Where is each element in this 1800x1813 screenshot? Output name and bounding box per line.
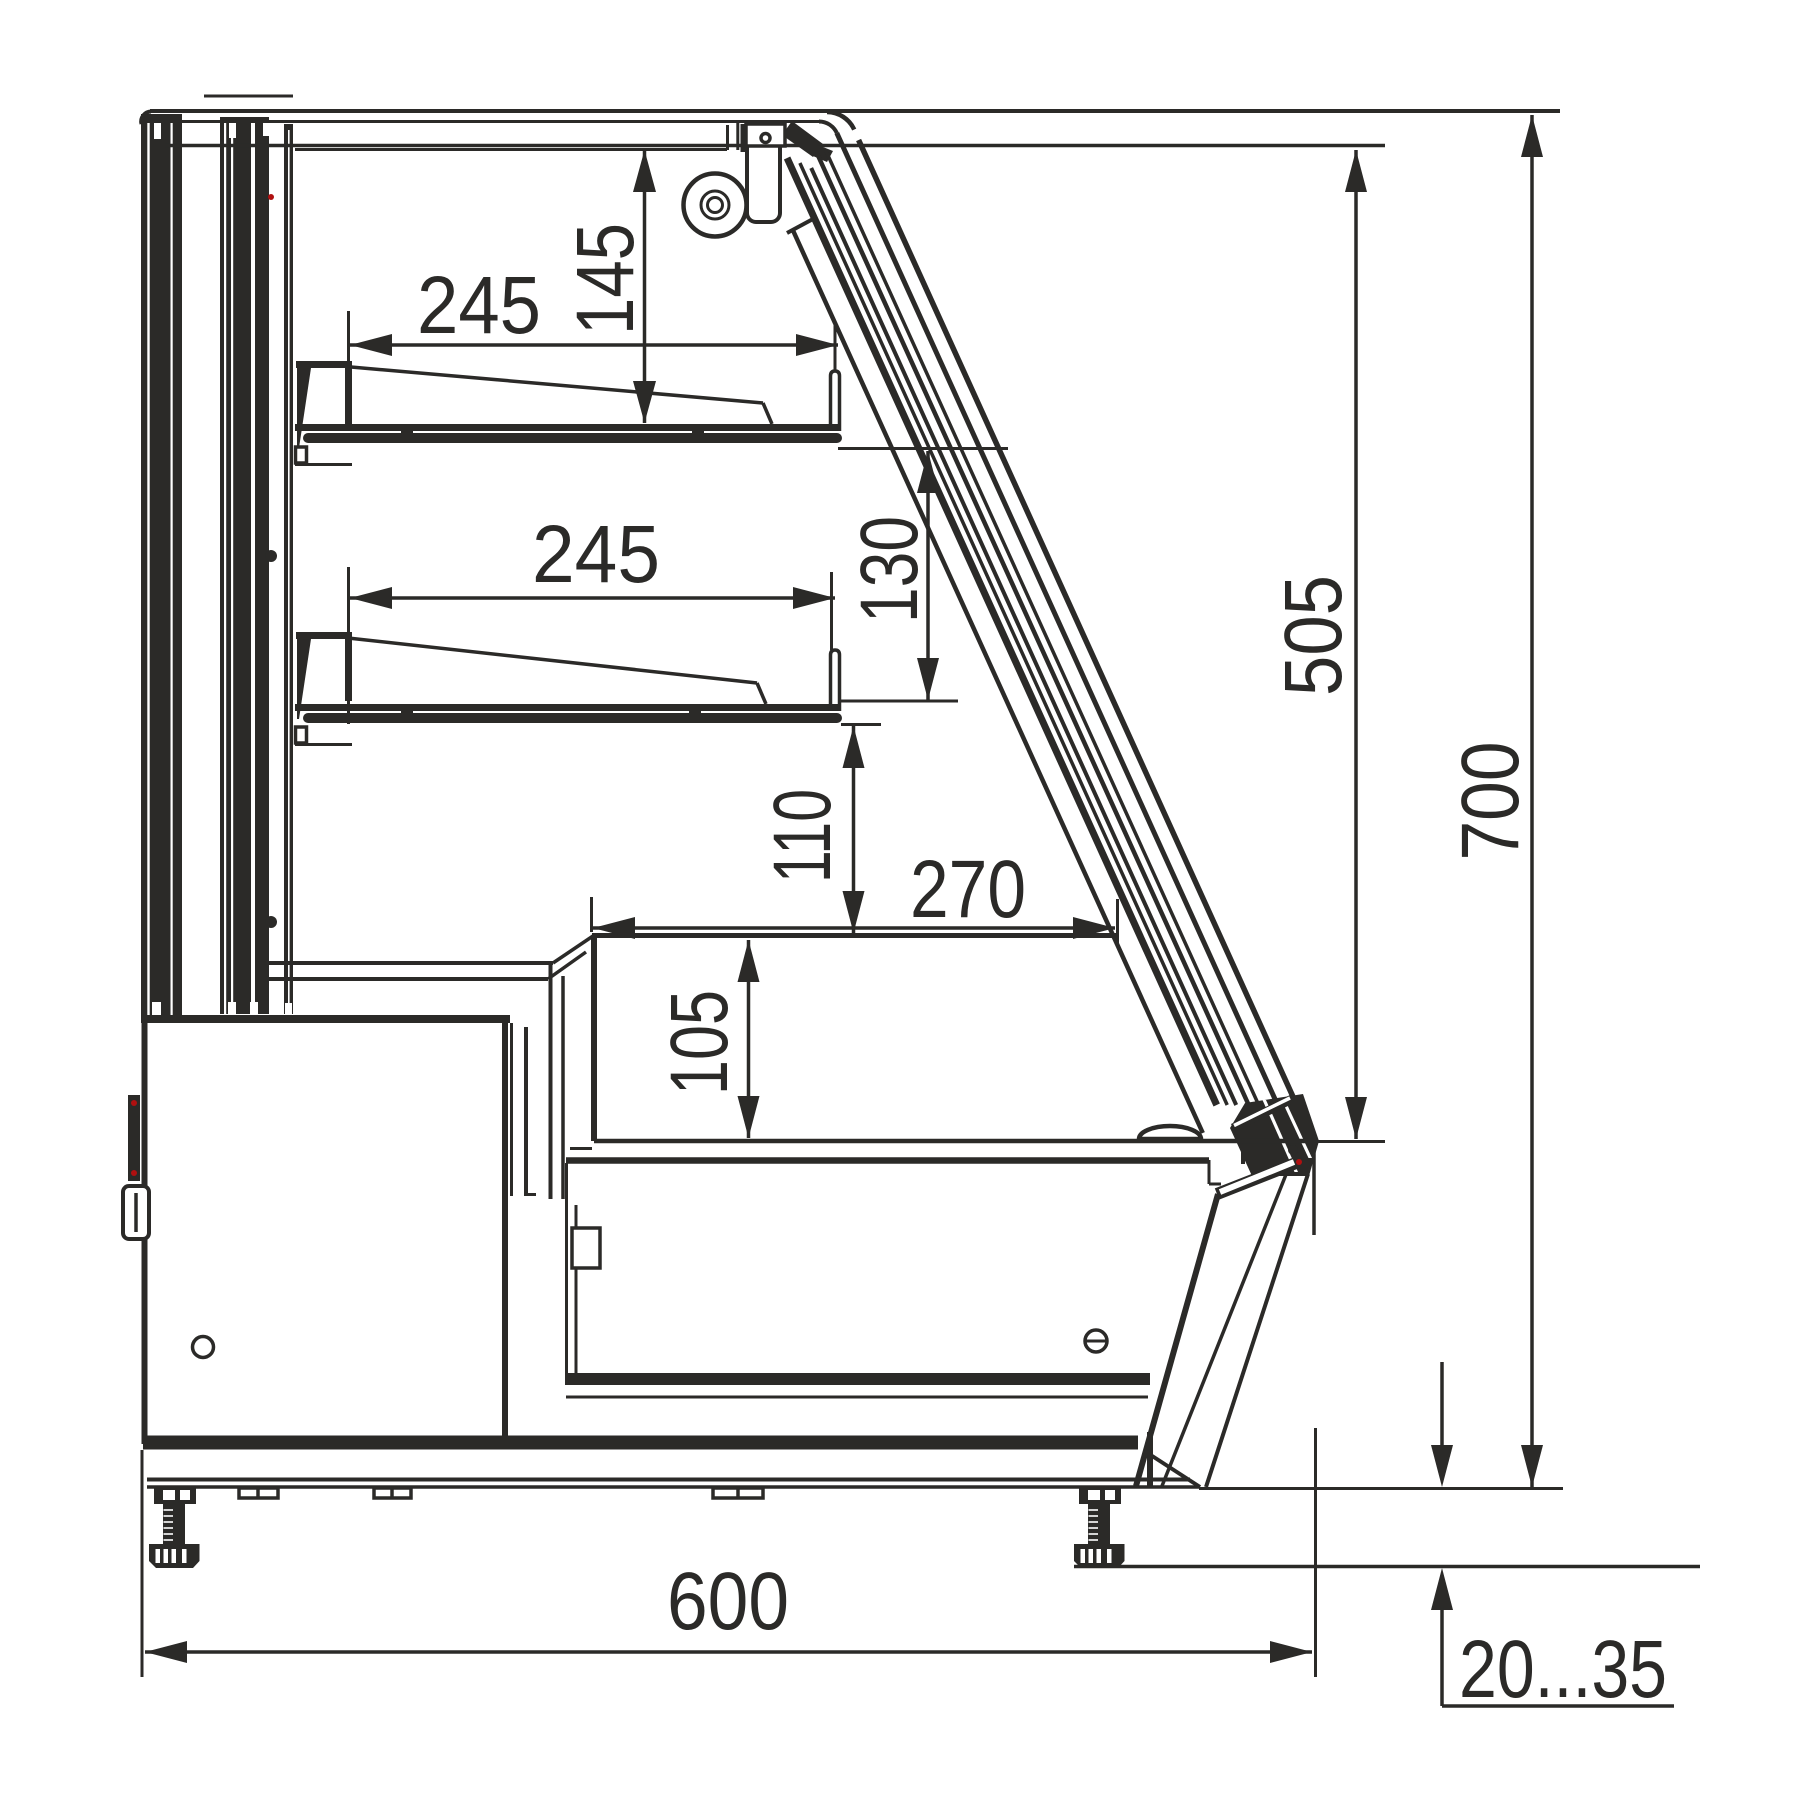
svg-text:105: 105 (654, 990, 745, 1095)
svg-text:130: 130 (844, 516, 935, 623)
svg-text:245: 245 (417, 260, 541, 351)
svg-text:110: 110 (757, 789, 848, 883)
svg-text:145: 145 (560, 223, 651, 335)
svg-text:245: 245 (532, 509, 660, 600)
svg-text:20...35: 20...35 (1459, 1624, 1667, 1715)
svg-text:600: 600 (667, 1556, 789, 1647)
svg-text:505: 505 (1268, 575, 1359, 696)
svg-text:700: 700 (1445, 742, 1536, 861)
svg-text:270: 270 (910, 844, 1026, 935)
